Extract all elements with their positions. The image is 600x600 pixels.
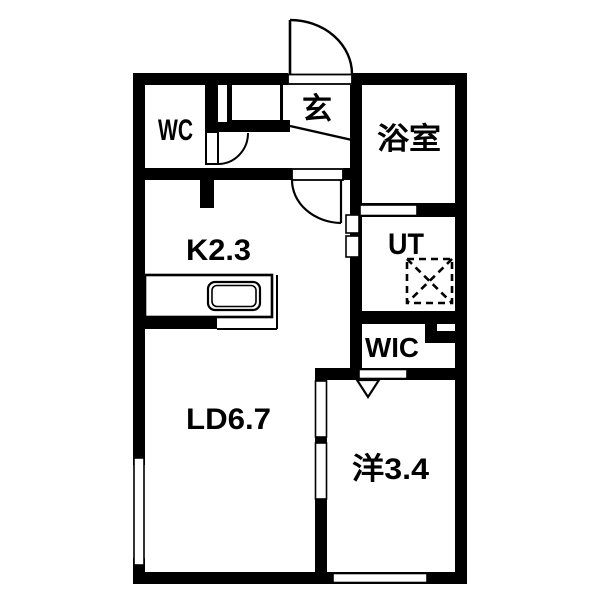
wall-closet-bottom	[232, 120, 290, 132]
entrance-sill	[288, 75, 352, 85]
room-label-genkan: 玄	[302, 92, 332, 126]
wic-door-opening	[359, 370, 407, 379]
wall-wic-notch-horizontal	[437, 331, 455, 343]
wall-left-upper	[133, 73, 145, 465]
genkan-step-line	[290, 126, 352, 140]
window-bedroom-bottom	[333, 574, 427, 583]
ut-door-panel-1	[346, 215, 359, 233]
wall-wic-notch-vertical	[425, 311, 437, 343]
room-label-utility: UT	[388, 228, 424, 261]
hall-door-opening	[292, 169, 343, 180]
wall-k-ld	[133, 317, 217, 329]
wc-pocket-slot	[218, 85, 227, 122]
bedroom-sliding-panel-1	[316, 381, 327, 437]
bedroom-sliding-panel-2	[316, 443, 327, 499]
hall-door-arc	[292, 180, 341, 223]
wall-hall-south-left	[133, 168, 292, 180]
wc-door-leaf	[206, 132, 218, 164]
floor-plan-page: WC 玄 浴室 K2.3 UT WIC LD6.7 洋3.4	[0, 0, 600, 600]
bathroom-sliding-door	[360, 205, 417, 216]
wc-door-arc	[218, 133, 248, 164]
room-label-bedroom: 洋3.4	[352, 453, 429, 486]
room-label-wic: WIC	[365, 332, 419, 363]
room-label-bathroom: 浴室	[377, 122, 441, 156]
wall-ut-wic	[350, 311, 455, 324]
wall-right	[455, 73, 467, 584]
wall-top-left	[133, 73, 288, 85]
wic-door-triangle	[357, 380, 379, 397]
ut-door-panel-2	[346, 236, 359, 257]
entrance-door-arc	[290, 20, 352, 74]
window-living-left	[134, 458, 144, 565]
room-label-living-dining: LD6.7	[186, 403, 271, 436]
floor-plan-svg: WC 玄 浴室 K2.3 UT WIC LD6.7 洋3.4	[0, 0, 600, 600]
washer-space-dashed-box	[407, 259, 452, 303]
inner-walls	[133, 85, 455, 572]
wall-fridge-stub	[200, 180, 214, 208]
wall-top-right	[352, 73, 467, 85]
room-label-kitchen: K2.3	[186, 234, 251, 267]
room-label-wc: WC	[158, 114, 193, 147]
wall-closet-right-line	[280, 85, 283, 120]
